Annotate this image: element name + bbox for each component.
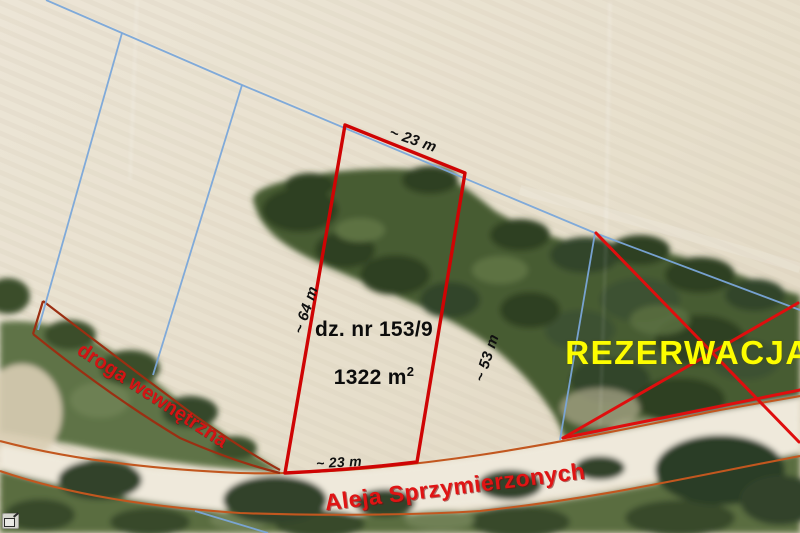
dimension-label-bottom-width: ~ 23 m bbox=[316, 453, 363, 471]
parcel-number-label: dz. nr 153/9 bbox=[315, 318, 433, 342]
aerial-photo-canvas bbox=[0, 0, 800, 533]
aerial-map: ~ 23 m ~ 64 m ~ 53 m ~ 23 m dz. nr 153/9… bbox=[0, 0, 800, 533]
parcel-area-value: 1322 m bbox=[334, 366, 407, 389]
window-glyph bbox=[4, 518, 15, 527]
window-restore-icon bbox=[2, 513, 19, 529]
parcel-area-label: 1322 m2 bbox=[334, 364, 415, 390]
parcel-area-exponent: 2 bbox=[407, 364, 415, 379]
reservation-status-label: REZERWACJA bbox=[565, 334, 800, 372]
